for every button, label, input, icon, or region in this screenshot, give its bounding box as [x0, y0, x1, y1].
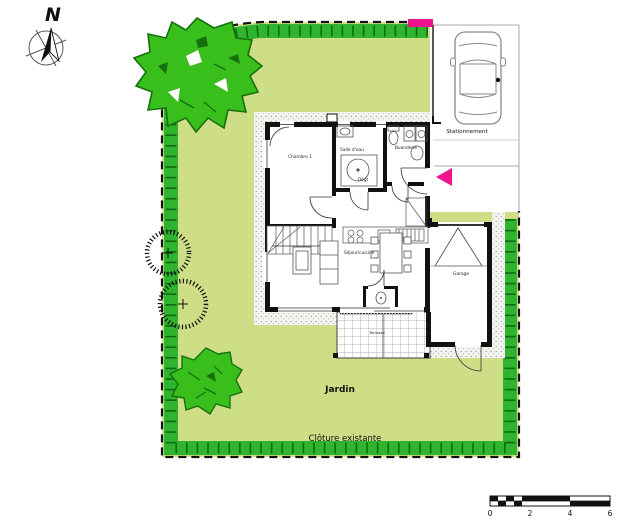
room-label-terrasse: Terrasse: [368, 330, 385, 335]
room-label-degagement: Dégt: [358, 176, 369, 183]
scale-bar: 0 2 4 6: [488, 496, 613, 518]
site-plan: N 0 2 4 6 Chambre 1 Salle d'eau Buanderi…: [0, 0, 630, 525]
entrance-marker: [436, 168, 452, 186]
car: [451, 32, 506, 124]
site-plan-drawing: N 0 2 4 6 Chambre 1 Salle d'eau Buanderi…: [0, 0, 630, 525]
scale-tick-2: 2: [528, 509, 533, 518]
north-compass: N: [26, 4, 66, 66]
house: [263, 114, 451, 313]
gate-marker: [408, 19, 433, 27]
scale-tick-4: 4: [568, 509, 573, 518]
north-label: N: [45, 4, 61, 26]
room-label-garage: Garage: [453, 271, 469, 277]
room-label-sejour: Séjour/cuisine: [344, 249, 375, 256]
room-label-buanderie: Buanderie: [395, 145, 417, 151]
room-label-chambre: Chambre 1: [288, 154, 312, 160]
scale-tick-6: 6: [608, 509, 613, 518]
garden-label: Jardin: [324, 385, 355, 395]
scale-tick-0: 0: [488, 509, 493, 518]
fence-label: Clôture existante: [309, 433, 382, 444]
parking-label: Stationnement: [446, 129, 488, 135]
room-label-salle-eau: Salle d'eau: [340, 147, 364, 153]
parking-area: [433, 25, 519, 211]
